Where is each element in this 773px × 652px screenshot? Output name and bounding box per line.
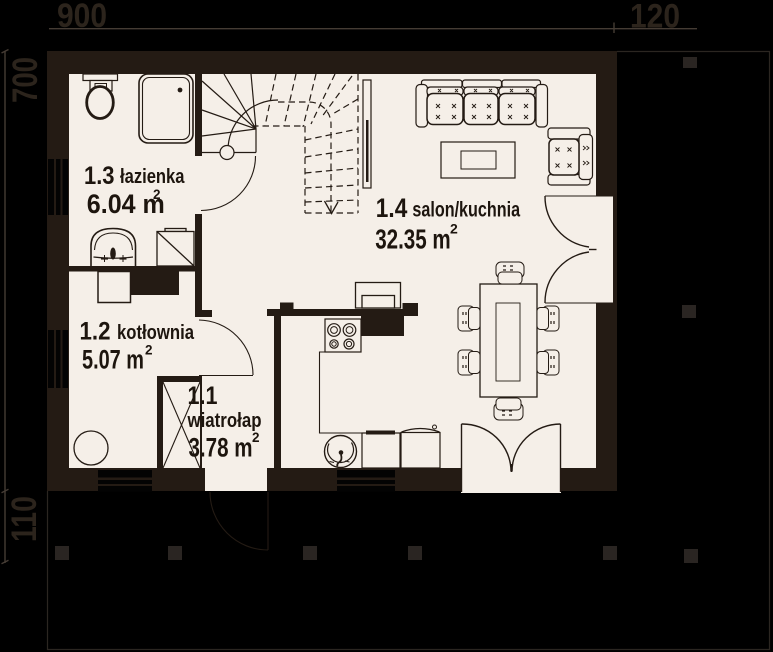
svg-text:110: 110 [5, 496, 44, 542]
svg-text:900: 900 [57, 0, 107, 35]
svg-text:łazienka: łazienka [120, 166, 185, 188]
svg-text:1.3: 1.3 [84, 162, 115, 190]
svg-text:salon/kuchnia: salon/kuchnia [412, 199, 520, 222]
svg-text:2: 2 [153, 187, 161, 202]
svg-text:2: 2 [450, 221, 458, 237]
svg-text:700: 700 [6, 57, 45, 103]
svg-text:32.35 m: 32.35 m [375, 223, 451, 254]
svg-text:2: 2 [252, 430, 260, 445]
svg-text:1.2: 1.2 [80, 318, 111, 346]
svg-text:1.4: 1.4 [376, 193, 408, 223]
svg-text:kotłownia: kotłownia [117, 322, 195, 344]
svg-text:1.1: 1.1 [188, 382, 218, 410]
svg-text:120: 120 [630, 0, 680, 36]
svg-text:wiatrołap: wiatrołap [187, 410, 262, 432]
svg-text:2: 2 [145, 343, 153, 358]
svg-text:5.07 m: 5.07 m [82, 345, 144, 375]
svg-text:3.78 m: 3.78 m [189, 433, 253, 463]
